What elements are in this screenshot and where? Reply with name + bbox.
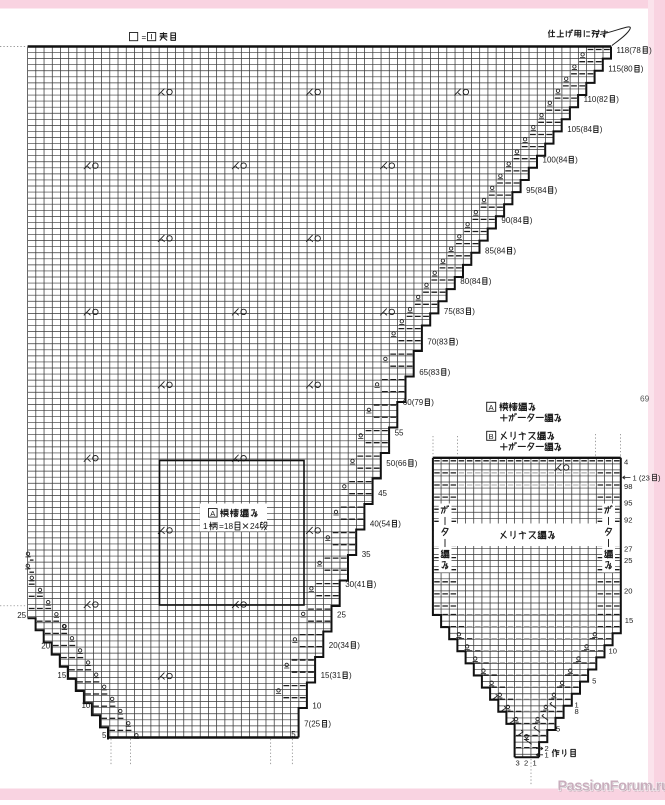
svg-text:7(25: 7(25 [304,720,321,729]
svg-text:10: 10 [609,647,617,656]
svg-text:15: 15 [57,671,66,680]
svg-text:105(84: 105(84 [567,125,592,134]
svg-text:): ) [472,307,475,316]
svg-text:20(34: 20(34 [329,641,350,650]
svg-text:5: 5 [102,731,107,740]
svg-text:1 (23: 1 (23 [633,473,650,482]
svg-text:75(83: 75(83 [444,307,465,316]
svg-text:=: = [142,33,147,42]
svg-text:92: 92 [624,516,632,525]
svg-text:): ) [555,186,558,195]
svg-text:): ) [513,247,516,256]
svg-text:5: 5 [592,677,596,686]
svg-text:=18: =18 [219,521,233,531]
svg-text:95: 95 [624,499,632,508]
svg-text:A: A [210,509,215,518]
svg-text:90(84: 90(84 [501,216,522,225]
svg-text:3: 3 [516,759,520,768]
svg-text:): ) [575,156,578,165]
svg-text:25: 25 [624,556,632,565]
svg-text:B: B [489,432,494,441]
svg-text:118(78: 118(78 [617,46,642,55]
svg-text:5: 5 [556,725,560,734]
svg-text:): ) [374,580,377,589]
svg-text:): ) [398,520,401,529]
svg-text:): ) [641,65,644,74]
svg-text:): ) [448,368,451,377]
svg-text:35: 35 [362,550,371,559]
svg-text:80(84: 80(84 [460,277,481,286]
svg-text:65(83: 65(83 [419,368,440,377]
svg-text:45: 45 [378,489,387,498]
svg-text:8: 8 [575,707,579,716]
svg-text:55: 55 [395,429,404,438]
svg-text:15(31: 15(31 [321,671,342,680]
svg-text:95(84: 95(84 [526,186,547,195]
svg-text:115(80: 115(80 [608,65,633,74]
svg-text:): ) [530,216,533,225]
svg-text:24: 24 [250,521,260,531]
svg-text:100(84: 100(84 [543,156,568,165]
svg-text:70(83: 70(83 [427,338,448,347]
svg-text:110(82: 110(82 [584,95,609,104]
svg-text:): ) [415,459,418,468]
svg-text:27: 27 [624,545,632,554]
svg-text:): ) [456,338,459,347]
svg-text:): ) [600,125,603,134]
svg-text:1: 1 [545,751,549,760]
svg-text:5: 5 [291,730,296,739]
svg-text:1: 1 [203,521,208,531]
svg-text:98: 98 [624,482,632,491]
svg-text:60(79: 60(79 [403,398,424,407]
svg-text:10: 10 [81,701,90,710]
svg-text:): ) [328,720,331,729]
svg-text:): ) [349,671,352,680]
svg-text:10: 10 [312,702,321,711]
svg-text:): ) [649,46,652,55]
svg-text:4: 4 [624,458,628,467]
svg-text:): ) [357,641,360,650]
svg-text:PassionForum.ru: PassionForum.ru [558,779,665,795]
svg-text:20: 20 [624,587,632,596]
svg-text:): ) [616,95,619,104]
svg-text:85(84: 85(84 [485,247,506,256]
svg-text:): ) [489,277,492,286]
svg-text:2: 2 [524,759,528,768]
svg-text:20: 20 [41,641,50,650]
svg-text:): ) [431,398,434,407]
svg-text:30(41: 30(41 [345,580,366,589]
svg-text:25: 25 [337,611,346,620]
svg-text:25: 25 [17,611,26,620]
svg-text:69: 69 [640,394,650,404]
svg-text:15: 15 [625,616,633,625]
svg-text:40(54: 40(54 [370,520,391,529]
svg-text:50(66: 50(66 [386,459,407,468]
svg-text:1: 1 [533,759,537,768]
